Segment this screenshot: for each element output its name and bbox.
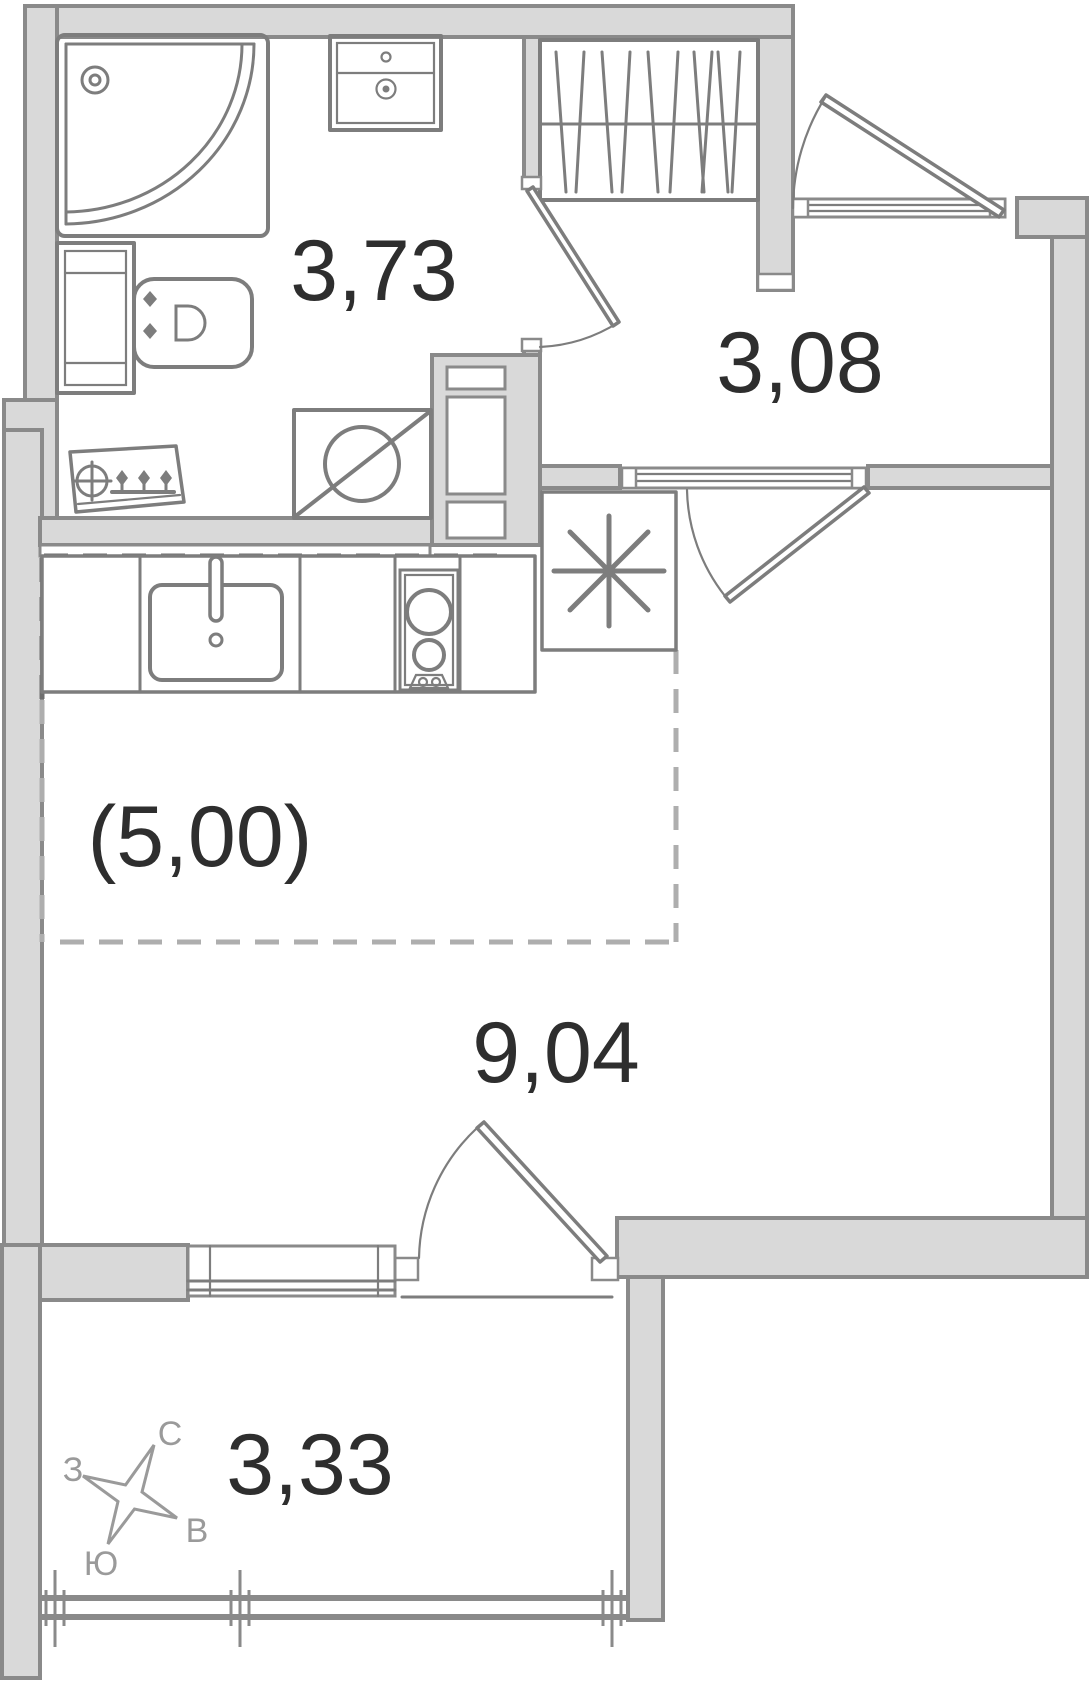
label-balcony-area: 3,33 xyxy=(226,1417,393,1513)
shaft-vent-3 xyxy=(447,502,505,538)
wall-bathroom-right-upper xyxy=(524,37,540,183)
wall-right-outer xyxy=(1052,237,1087,1225)
compass-west: З xyxy=(63,1451,84,1489)
fridge-asterisk xyxy=(554,516,664,626)
label-hallway-area: 3,08 xyxy=(716,315,883,411)
vanity-drain-dot xyxy=(383,86,390,93)
wall-room-bottom-right xyxy=(617,1218,1087,1277)
kitchen-faucet-icon xyxy=(210,557,222,621)
wall-left-bathroom xyxy=(25,6,57,430)
balcony-window xyxy=(188,1246,395,1296)
shaft-vent-2 xyxy=(447,397,505,494)
wall-hall-room-left xyxy=(540,466,620,488)
entrance-jamb-left xyxy=(793,199,808,217)
wall-entry-corner xyxy=(1017,198,1087,237)
wall-balcony-right xyxy=(628,1277,663,1620)
fridge-icon xyxy=(542,492,676,650)
balcony-jamb-right xyxy=(592,1258,618,1280)
label-living-room-area: 9,04 xyxy=(472,1005,639,1101)
kitchen-counter xyxy=(42,556,535,692)
wall-wardrobe-right xyxy=(758,37,793,290)
compass-east: В xyxy=(186,1512,209,1550)
room-door-sill xyxy=(622,468,866,488)
compass-north: С xyxy=(158,1415,183,1453)
label-kitchen-area: (5,00) xyxy=(88,789,313,885)
room-jamb-right xyxy=(852,468,866,488)
compass-south: Ю xyxy=(84,1545,118,1583)
wall-hall-room-right xyxy=(868,466,1052,488)
bathroom-jamb-bottom xyxy=(522,339,541,351)
room-jamb-left xyxy=(622,468,636,488)
plumbing-unit-icon xyxy=(70,446,184,512)
label-bathroom-area: 3,73 xyxy=(290,223,457,319)
jamb-wardrobe-wall xyxy=(758,274,793,290)
wall-balcony-left xyxy=(2,1245,40,1678)
wall-top xyxy=(25,6,793,37)
floor-plan: С З В Ю 3,73 3,08 (5,00) 9,04 3,33 xyxy=(0,0,1090,1686)
wall-left-living xyxy=(4,430,42,1245)
shaft-vent-1 xyxy=(447,367,505,389)
